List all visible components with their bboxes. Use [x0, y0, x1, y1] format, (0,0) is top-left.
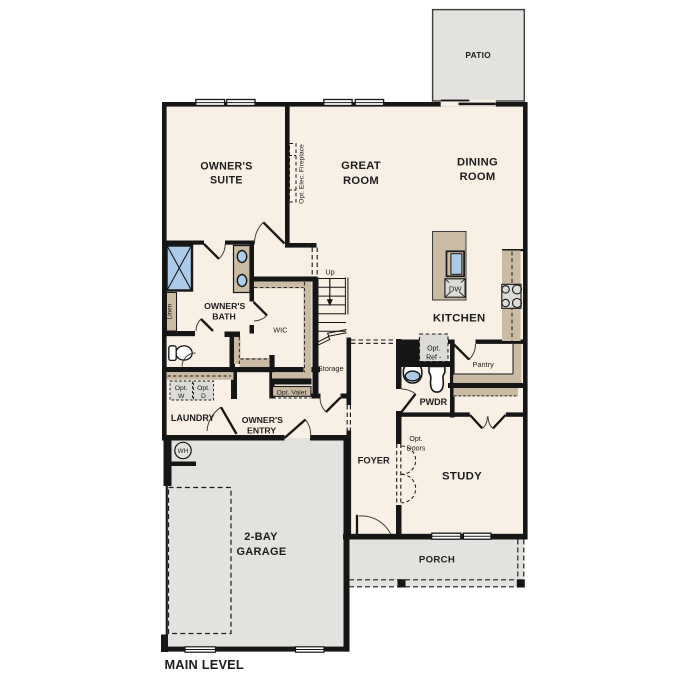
svg-text:OWNER'S: OWNER'S — [204, 301, 245, 311]
svg-text:Opt.: Opt. — [197, 385, 210, 392]
svg-text:OWNER'S: OWNER'S — [242, 415, 283, 425]
svg-text:Opt. Elec. Fireplace: Opt. Elec. Fireplace — [299, 144, 306, 204]
svg-text:ENTRY: ENTRY — [247, 426, 276, 436]
svg-text:D: D — [201, 393, 206, 400]
svg-text:ROOM: ROOM — [343, 175, 379, 187]
svg-text:2-BAY: 2-BAY — [244, 531, 278, 543]
svg-text:PORCH: PORCH — [419, 554, 455, 565]
svg-text:FOYER: FOYER — [358, 456, 390, 466]
svg-text:Pantry: Pantry — [473, 360, 495, 369]
svg-text:Up: Up — [325, 268, 334, 277]
svg-text:WIC: WIC — [273, 325, 287, 334]
svg-text:GARAGE: GARAGE — [236, 546, 286, 558]
svg-text:DW: DW — [449, 285, 462, 294]
svg-text:LAUNDRY: LAUNDRY — [171, 413, 215, 423]
svg-text:W: W — [178, 393, 185, 400]
svg-text:Linen: Linen — [166, 303, 173, 319]
svg-text:PWDR: PWDR — [420, 397, 448, 407]
svg-text:BATH: BATH — [212, 312, 235, 322]
svg-text:Opt.: Opt. — [175, 385, 188, 392]
svg-text:WH: WH — [178, 448, 189, 455]
svg-text:Opt.: Opt. — [409, 436, 422, 443]
svg-text:MAIN LEVEL: MAIN LEVEL — [164, 657, 244, 672]
svg-text:Ref -: Ref - — [426, 355, 442, 362]
svg-text:KITCHEN: KITCHEN — [433, 312, 486, 324]
svg-text:Doors: Doors — [407, 446, 426, 453]
svg-text:PATIO: PATIO — [465, 50, 491, 60]
svg-text:ROOM: ROOM — [459, 171, 495, 183]
svg-text:SUITE: SUITE — [210, 174, 243, 186]
svg-text:STUDY: STUDY — [442, 471, 482, 483]
svg-text:Opt. Valet: Opt. Valet — [277, 389, 307, 396]
svg-text:Opt.: Opt. — [427, 346, 440, 353]
svg-text:DINING: DINING — [457, 157, 498, 169]
svg-text:OWNER'S: OWNER'S — [200, 160, 252, 172]
svg-text:Storage: Storage — [318, 364, 344, 373]
svg-text:GREAT: GREAT — [341, 160, 381, 172]
